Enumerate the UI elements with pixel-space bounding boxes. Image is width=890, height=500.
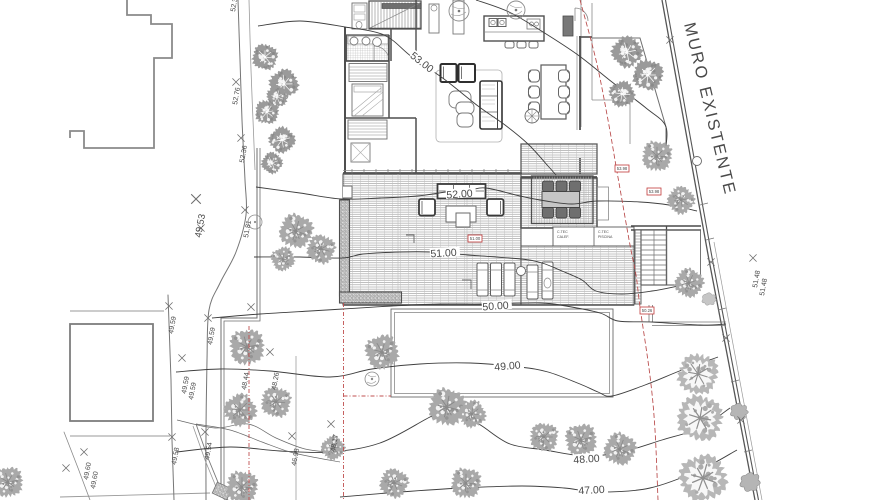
svg-text:48.00: 48.00 — [573, 453, 600, 467]
svg-text:53.98: 53.98 — [649, 189, 660, 194]
svg-text:52.00: 52.00 — [446, 188, 473, 202]
svg-text:53.98: 53.98 — [617, 166, 628, 171]
svg-text:51.00: 51.00 — [470, 236, 481, 241]
svg-text:C.TEC: C.TEC — [598, 230, 609, 234]
svg-text:47.00: 47.00 — [578, 484, 605, 497]
svg-text:50.26: 50.26 — [642, 308, 653, 313]
svg-text:50.00: 50.00 — [482, 300, 509, 314]
svg-text:PISCINA: PISCINA — [598, 235, 613, 239]
svg-text:51.00: 51.00 — [430, 247, 457, 260]
svg-text:CALEF.: CALEF. — [557, 235, 569, 239]
svg-text:C.TEC: C.TEC — [557, 230, 568, 234]
svg-text:49.00: 49.00 — [494, 359, 521, 373]
